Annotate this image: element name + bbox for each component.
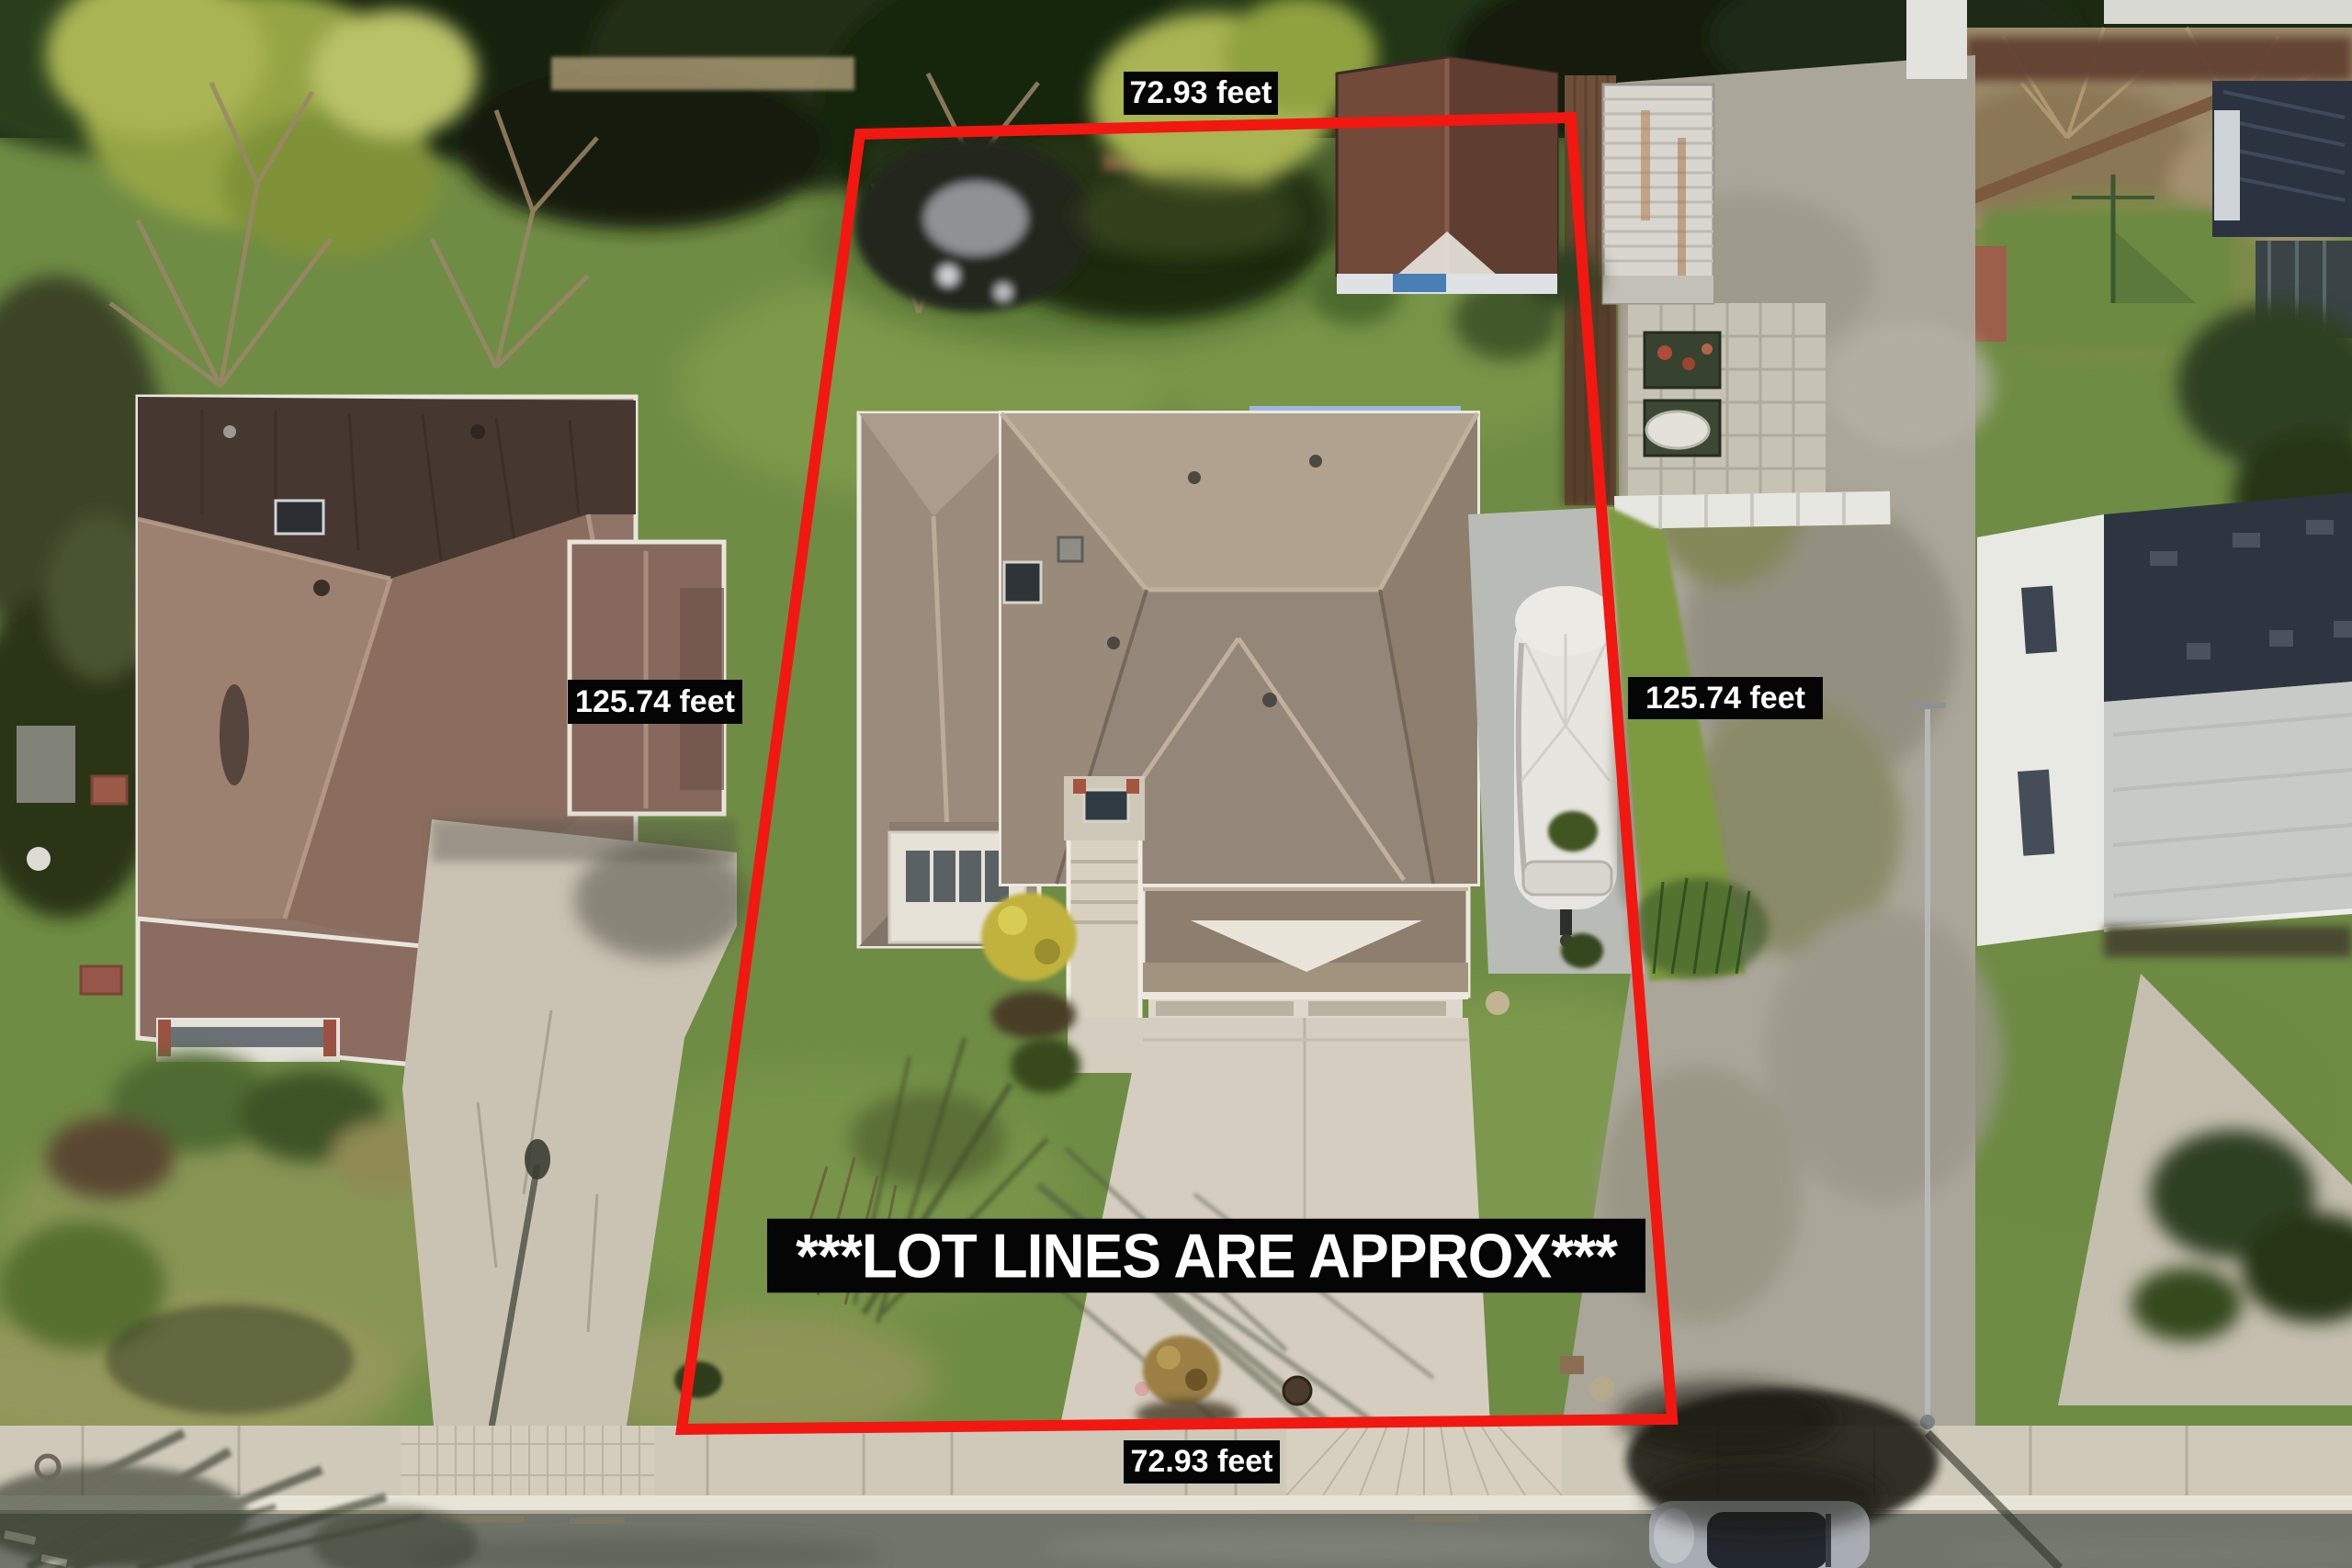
lot-lines-disclaimer: ***LOT LINES ARE APPROX***	[767, 1219, 1645, 1293]
dimension-label-right: 125.74 feet	[1628, 677, 1823, 719]
lot-boundary-layer	[0, 0, 2352, 1568]
dimension-label-left: 125.74 feet	[568, 680, 742, 724]
dimension-label-top: 72.93 feet	[1124, 72, 1278, 115]
aerial-photo: 72.93 feet 125.74 feet 125.74 feet 72.93…	[0, 0, 2352, 1568]
dimension-label-bottom: 72.93 feet	[1124, 1440, 1280, 1483]
